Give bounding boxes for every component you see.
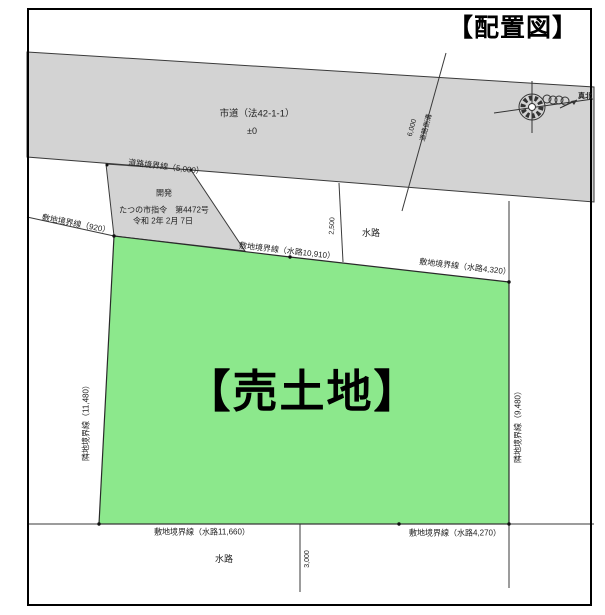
- page-title: 【配置図】: [448, 14, 578, 43]
- site-plan-page: 【配置図】 市道（法42-1-1） ±0 道路境界線（5,000） 6,000 …: [0, 0, 605, 615]
- boundary-left-label: 隣地境界線（11,480）: [81, 381, 90, 461]
- waterway-bottom-dim: 3,000: [304, 550, 312, 568]
- drawing-frame: [27, 8, 592, 606]
- road-name-label: 市道（法42-1-1）: [220, 110, 295, 121]
- permit-line2: たつの市指令 第4472号: [119, 205, 209, 214]
- plot-for-sale-label: 【売土地】: [185, 366, 420, 418]
- boundary-bottom-right-label: 敷地境界線（水路4,270）: [409, 528, 501, 537]
- permit-line1: 開発: [156, 188, 172, 197]
- true-north-label: 真北: [578, 93, 592, 101]
- boundary-bottom-left-label: 敷地境界線（水路11,660）: [154, 527, 250, 536]
- waterway-bottom-label: 水路: [215, 554, 233, 564]
- road-elevation-label: ±0: [247, 126, 257, 136]
- waterway-top-label: 水路: [362, 228, 380, 238]
- boundary-right-label: 隣地境界線（9,480）: [513, 387, 522, 463]
- waterway-top-dim: 2,500: [329, 217, 338, 235]
- permit-line3: 令和 2年 2月 7日: [133, 216, 193, 225]
